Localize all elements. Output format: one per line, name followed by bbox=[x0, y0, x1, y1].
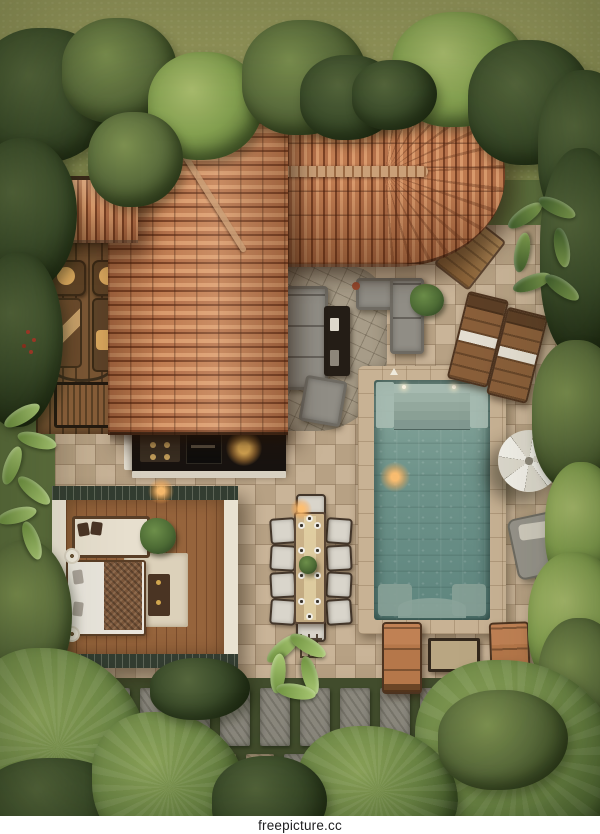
potted-plant bbox=[410, 284, 444, 316]
bedroom-plant bbox=[140, 518, 176, 556]
watermark-text: freepicture.cc bbox=[258, 818, 342, 833]
plate bbox=[314, 547, 321, 554]
pool-lamp bbox=[402, 385, 406, 389]
villa-aerial-scene: freepicture.cc bbox=[0, 0, 600, 834]
bed-pillow bbox=[72, 569, 84, 584]
bedroom-console-table bbox=[148, 574, 170, 616]
coffee-table bbox=[324, 306, 350, 376]
dining-chair bbox=[269, 517, 297, 545]
book bbox=[330, 350, 339, 366]
woven-bedspread bbox=[104, 562, 142, 630]
pool-ledge bbox=[376, 382, 394, 428]
sun-lounger bbox=[382, 622, 422, 694]
big-leaf-plant bbox=[258, 636, 338, 708]
patio-light-glow bbox=[148, 478, 174, 504]
pool-marker bbox=[390, 368, 398, 375]
outdoor-sofa bbox=[284, 286, 328, 390]
plate bbox=[298, 522, 305, 529]
plate bbox=[298, 598, 305, 605]
red-flowers bbox=[26, 330, 30, 334]
pool-entry-step bbox=[398, 598, 466, 618]
dining-chair bbox=[325, 544, 352, 571]
pillow bbox=[90, 521, 103, 535]
plate bbox=[298, 547, 305, 554]
tray bbox=[330, 318, 339, 331]
plant-foliage bbox=[140, 518, 176, 554]
counter-edge bbox=[132, 471, 286, 478]
dining-chair bbox=[325, 517, 353, 545]
watermark-bar: freepicture.cc bbox=[0, 816, 600, 834]
bed-pillow bbox=[72, 601, 84, 616]
plate bbox=[306, 613, 313, 620]
agave-plant bbox=[497, 190, 600, 320]
table-centerpiece-plant bbox=[299, 556, 317, 574]
bed bbox=[66, 560, 146, 636]
patio-light-glow bbox=[290, 498, 312, 520]
plate bbox=[314, 522, 321, 529]
big-leaf-plant bbox=[0, 388, 87, 568]
dining-chair bbox=[325, 598, 353, 626]
dining-chair bbox=[269, 544, 296, 571]
patio-light-glow bbox=[380, 462, 410, 492]
outdoor-armchair bbox=[298, 375, 347, 428]
dining-chair bbox=[325, 571, 352, 598]
swimming-pool bbox=[374, 380, 490, 620]
eave-shadow bbox=[110, 432, 288, 446]
vase bbox=[352, 282, 360, 290]
pool-step bbox=[394, 420, 470, 430]
dining-chair bbox=[269, 598, 297, 626]
plate bbox=[314, 598, 321, 605]
dining-chair bbox=[269, 571, 296, 598]
